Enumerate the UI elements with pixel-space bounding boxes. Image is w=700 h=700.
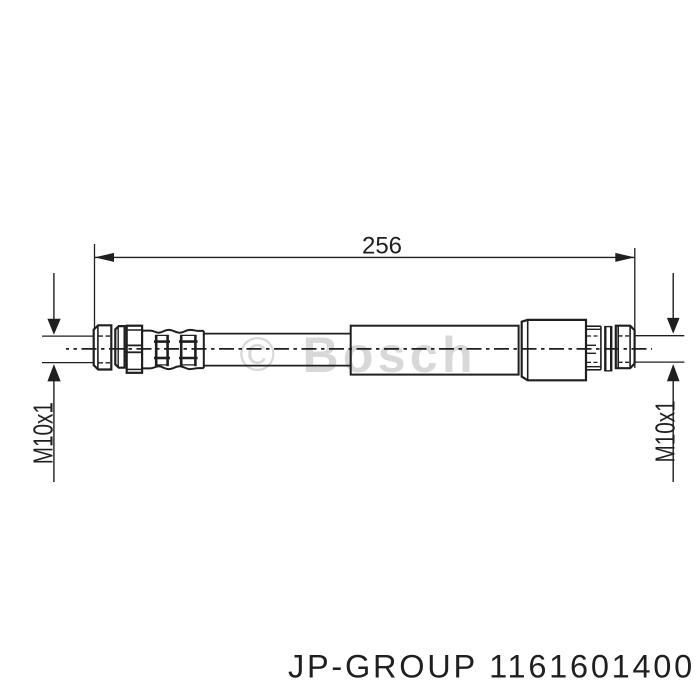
svg-text:M10x1: M10x1 — [29, 402, 60, 464]
svg-text:©: © — [240, 328, 276, 382]
svg-text:256: 256 — [362, 232, 402, 259]
svg-text:JP-GROUP 1161601400: JP-GROUP 1161601400 — [288, 649, 695, 685]
svg-text:M10x1: M10x1 — [651, 400, 682, 462]
